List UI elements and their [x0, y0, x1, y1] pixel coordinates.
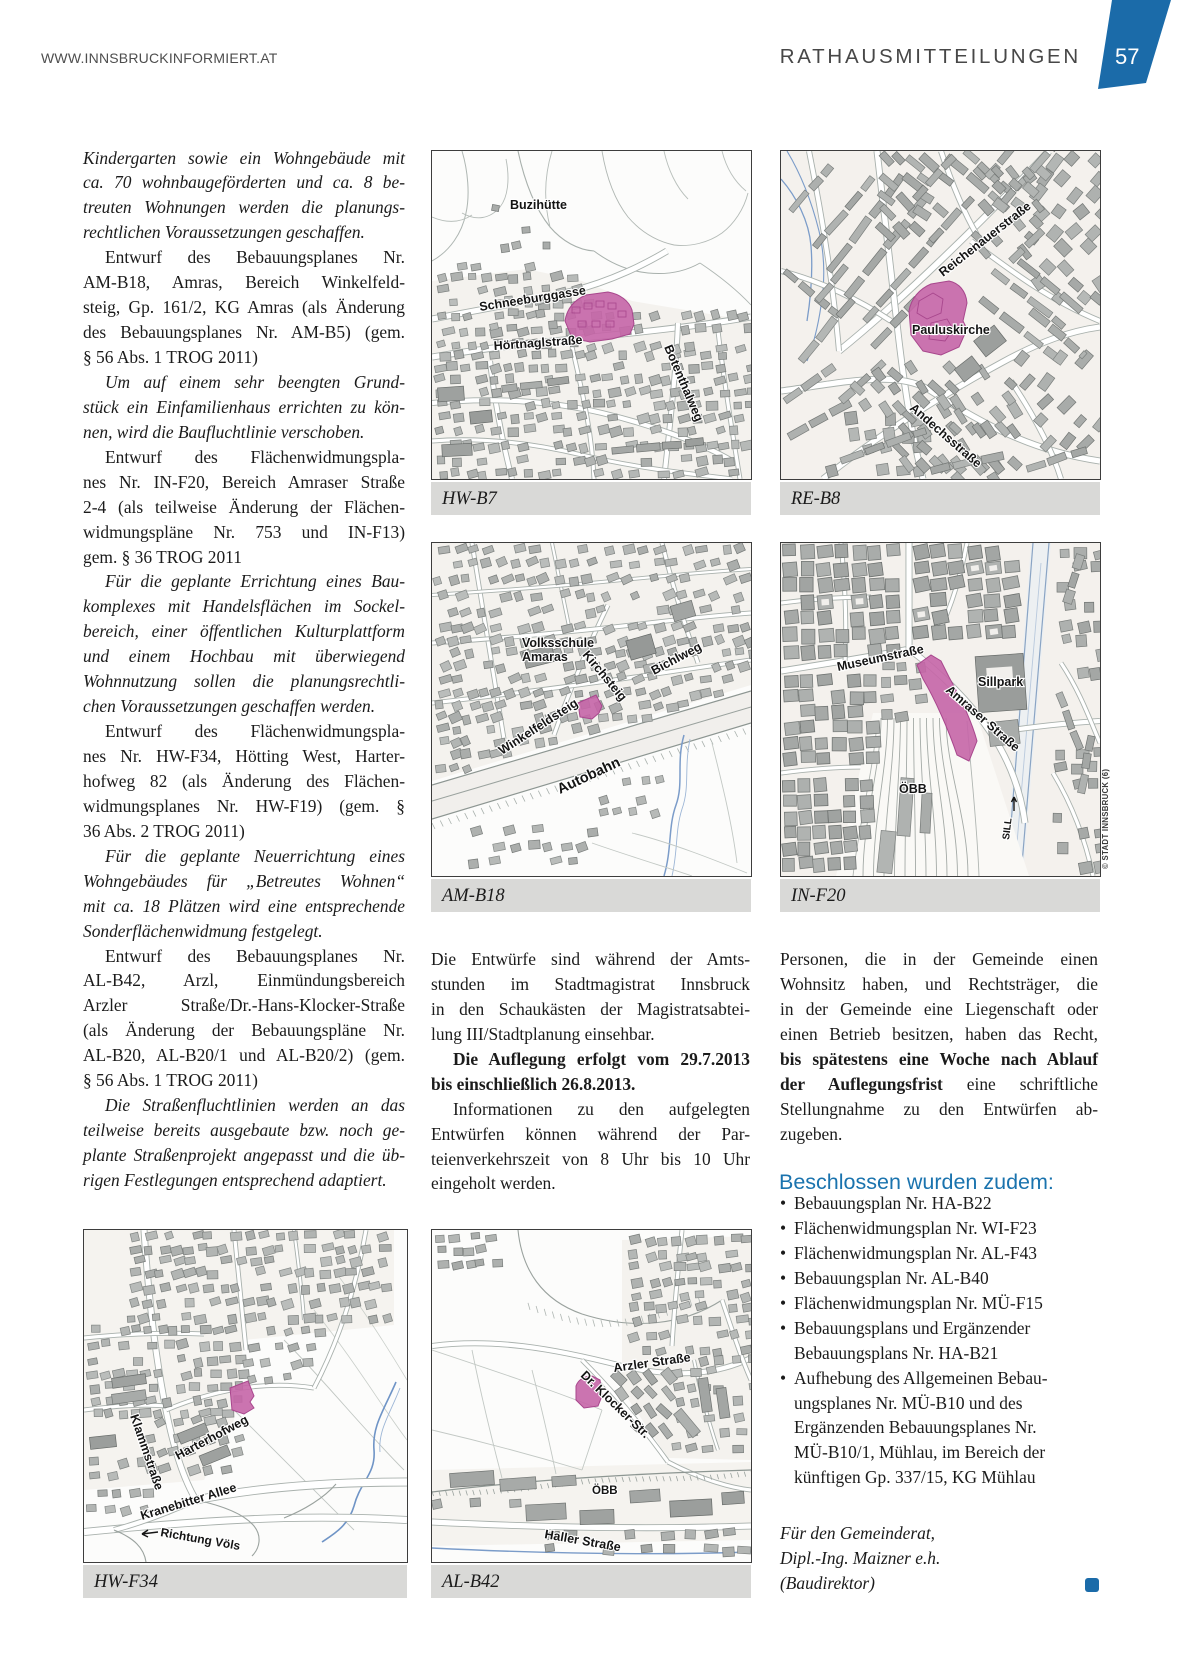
svg-text:Sillpark: Sillpark — [978, 675, 1023, 689]
svg-text:ÖBB: ÖBB — [899, 781, 927, 796]
svg-text:ÖBB: ÖBB — [592, 1484, 618, 1497]
svg-text:57: 57 — [1115, 44, 1139, 69]
svg-text:Volksschule: Volksschule — [522, 636, 594, 650]
svg-text:Pauluskirche: Pauluskirche — [912, 323, 990, 337]
svg-text:Buzihütte: Buzihütte — [510, 198, 567, 212]
svg-text:Amaras: Amaras — [522, 650, 568, 664]
